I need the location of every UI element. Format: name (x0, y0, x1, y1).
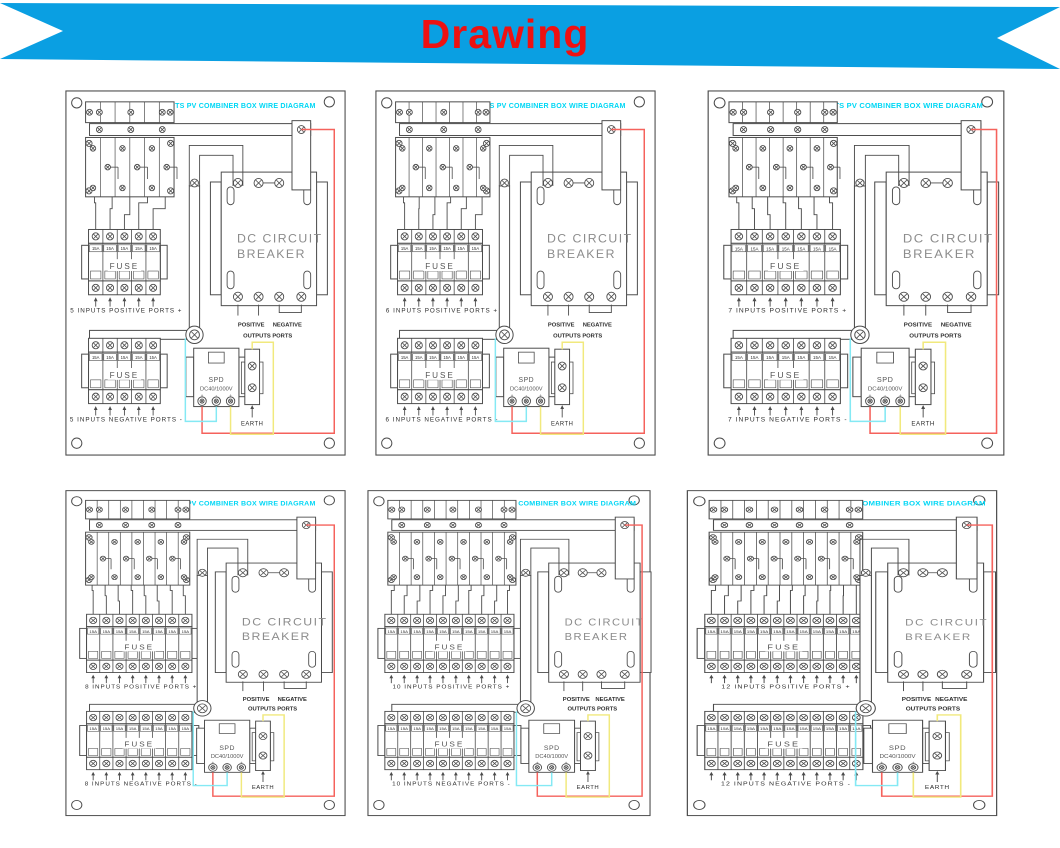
outputs-negative-label: NEGATIVE (941, 323, 972, 329)
fuse-rating-label: 15A (786, 726, 794, 730)
outputs-ports-label: OUTPUTS PORTS (567, 707, 617, 713)
fuse-rating-label: 15A (168, 726, 176, 731)
negative-ports-label: 10 INPUTS NEGATIVE PORTS - (392, 782, 511, 788)
fuse-rating-label: 15A (478, 629, 486, 634)
breaker-label: BREAKER (565, 631, 629, 642)
drawing-sheet: { "banner": { "title": "Drawing", "bg_co… (0, 0, 1060, 848)
fuse-rating-label: 15A (92, 246, 100, 251)
fuse-label: FUSE (434, 643, 464, 651)
fuse-rating-label: 15A (734, 629, 742, 633)
fuse-rating-label: 15A (149, 246, 157, 251)
fuse-rating-label: 15A (504, 629, 512, 634)
fuse-rating-label: 15A (116, 726, 124, 731)
fuse-rating-label: 15A (829, 246, 837, 251)
surge-protector: SPDDC40/1000V+-+ (864, 720, 932, 772)
fuse-rating-label: 15A (155, 726, 163, 731)
spd-label: DC40/1000V (880, 755, 916, 760)
fuse-rating-label: 15A (89, 629, 97, 634)
fuse-rating-label: 15A (782, 355, 790, 360)
combiner-diagram-10-inputs: 10 INPUTS PV COMBINER BOX WIRE DIAGRAM15… (364, 488, 654, 820)
fuse-rating-label: 15A (439, 629, 447, 634)
fuse-rating-label: 15A (766, 246, 774, 251)
outputs-negative-label: NEGATIVE (595, 697, 625, 703)
outputs-ports-label: OUTPUTS PORTS (248, 707, 298, 713)
fuse-label: FUSE (770, 370, 801, 380)
fuse-rating-label: 15A (813, 629, 821, 633)
panel-slot-1: 5 INPUTS PV COMBINER BOX WIRE DIAGRAM15A… (62, 88, 349, 465)
spd-label: SPD (219, 746, 235, 753)
breaker-label: BREAKER (237, 247, 306, 261)
surge-protector: SPDDC40/1000V+-+ (186, 348, 247, 406)
fuse-rating-label: 15A (452, 629, 460, 634)
positive-ports-label: 10 INPUTS POSITIVE PORTS + (392, 685, 510, 691)
fuse-rating-label: 15A (457, 355, 465, 360)
breaker-label: BREAKER (905, 632, 972, 643)
fuse-rating-label: 15A (129, 629, 137, 634)
spd-label: SPD (889, 746, 906, 752)
earth-label: EARTH (911, 421, 935, 428)
fuse-rating-label: 15A (401, 246, 409, 251)
fuse-label: FUSE (767, 643, 800, 651)
spd-label: DC40/1000V (510, 387, 543, 393)
fuse-rating-label: 15A (182, 726, 190, 731)
breaker-label: DC CIRCUIT (242, 616, 328, 628)
banner-title: Drawing (421, 11, 590, 57)
panel-slot-2: 6 INPUTS PV COMBINER BOX WIRE DIAGRAM15A… (372, 88, 659, 465)
positive-ports-label: 8 INPUTS POSITIVE PORTS + (85, 685, 197, 691)
fuse-rating-label: 15A (149, 355, 157, 360)
surge-protector: SPDDC40/1000V+-+ (197, 720, 258, 772)
spd-label: DC40/1000V (200, 387, 233, 393)
fuse-rating-label: 15A (766, 355, 774, 360)
fuse-rating-label: 15A (135, 246, 143, 251)
fuse-label: FUSE (425, 371, 455, 380)
fuse-rating-label: 15A (465, 629, 473, 634)
fuse-rating-label: 15A (491, 629, 499, 634)
outputs-positive-label: POSITIVE (238, 322, 265, 328)
combiner-diagram-5-inputs: 5 INPUTS PV COMBINER BOX WIRE DIAGRAM15A… (62, 88, 349, 460)
positive-ports-label: 12 INPUTS POSITIVE PORTS + (721, 684, 850, 690)
spd-label: DC40/1000V (535, 754, 568, 760)
breaker-label: DC CIRCUIT (237, 231, 323, 245)
surge-protector: SPDDC40/1000V+-+ (853, 348, 918, 406)
fuse-rating-label: 15A (751, 355, 759, 360)
spd-label: DC40/1000V (211, 754, 244, 760)
fuse-rating-label: 15A (799, 629, 807, 633)
breaker-label: BREAKER (547, 247, 616, 261)
outputs-negative-label: NEGATIVE (583, 322, 612, 328)
fuse-rating-label: 15A (829, 355, 837, 360)
fuse-rating-label: 15A (782, 246, 790, 251)
fuse-rating-label: 15A (413, 629, 421, 634)
fuse-rating-label: 15A (747, 629, 755, 633)
fuse-rating-label: 15A (735, 246, 743, 251)
junction-stud (496, 326, 513, 343)
fuse-rating-label: 15A (388, 629, 396, 634)
fuse-rating-label: 15A (465, 726, 473, 731)
fuse-rating-label: 15A (443, 355, 451, 360)
panel-slot-6: 12 INPUTS PV COMBINER BOX WIRE DIAGRAM15… (683, 488, 1001, 825)
fuse-rating-label: 15A (401, 355, 409, 360)
combiner-diagram-12-inputs: 12 INPUTS PV COMBINER BOX WIRE DIAGRAM15… (683, 488, 1001, 820)
fuse-rating-label: 15A (400, 629, 408, 634)
surge-protector: SPDDC40/1000V+-+ (496, 348, 557, 406)
outputs-positive-label: POSITIVE (563, 697, 590, 703)
fuse-rating-label: 15A (504, 726, 512, 731)
fuse-rating-label: 15A (786, 629, 794, 633)
earth-label: EARTH (577, 785, 600, 791)
fuse-rating-label: 15A (89, 726, 97, 731)
fuse-rating-label: 15A (116, 629, 124, 634)
panel-title: 5 INPUTS PV COMBINER BOX WIRE DIAGRAM (151, 102, 315, 110)
fuse-label: FUSE (110, 371, 140, 380)
fuse-rating-label: 15A (426, 629, 434, 634)
fuse-rating-label: 15A (142, 726, 150, 731)
junction-stud (194, 701, 211, 717)
fuse-rating-label: 15A (182, 629, 190, 634)
fuse-rating-label: 15A (813, 355, 821, 360)
fuse-rating-label: 15A (142, 629, 150, 634)
fuse-rating-label: 15A (813, 246, 821, 251)
fuse-rating-label: 15A (400, 726, 408, 731)
fuse-rating-label: 15A (813, 726, 821, 730)
fuse-rating-label: 15A (797, 246, 805, 251)
spd-label: SPD (544, 746, 560, 753)
spd-label: SPD (877, 376, 894, 384)
fuse-rating-label: 15A (106, 246, 114, 251)
spd-label: DC40/1000V (868, 387, 903, 393)
junction-stud (517, 701, 534, 717)
negative-ports-label: 6 INPUTS NEGATIVE PORTS - (386, 416, 499, 423)
negative-ports-label: 12 INPUTS NEGATIVE PORTS - (721, 781, 851, 787)
fuse-rating-label: 15A (826, 629, 834, 633)
negative-ports-label: 7 INPUTS NEGATIVE PORTS - (728, 417, 848, 424)
earth-label: EARTH (551, 421, 573, 427)
fuse-rating-label: 15A (797, 355, 805, 360)
fuse-rating-label: 15A (121, 355, 129, 360)
fuse-rating-label: 15A (773, 726, 781, 730)
fuse-rating-label: 15A (155, 629, 163, 634)
earth-label: EARTH (252, 785, 274, 791)
fuse-rating-label: 15A (799, 726, 807, 730)
combiner-diagram-8-inputs: 8 INPUTS PV COMBINER BOX WIRE DIAGRAM15A… (62, 488, 349, 820)
breaker-label: DC CIRCUIT (905, 618, 988, 629)
fuse-rating-label: 15A (415, 355, 423, 360)
outputs-ports-label: OUTPUTS PORTS (243, 333, 292, 339)
fuse-rating-label: 15A (429, 355, 437, 360)
fuse-rating-label: 15A (168, 629, 176, 634)
junction-stud (856, 701, 875, 717)
fuse-label: FUSE (110, 262, 140, 271)
earth-label: EARTH (241, 421, 263, 427)
fuse-rating-label: 15A (92, 355, 100, 360)
breaker-label: BREAKER (242, 630, 311, 642)
outputs-positive-label: POSITIVE (243, 697, 270, 703)
fuse-rating-label: 15A (103, 629, 111, 634)
fuse-rating-label: 15A (751, 246, 759, 251)
positive-ports-label: 7 INPUTS POSITIVE PORTS + (728, 308, 847, 315)
surge-protector: SPDDC40/1000V+-+ (521, 720, 583, 772)
combiner-diagram-7-inputs: 7 INPUTS PV COMBINER BOX WIRE DIAGRAM15A… (704, 88, 1008, 460)
fuse-rating-label: 15A (839, 629, 847, 633)
fuse-rating-label: 15A (747, 726, 755, 730)
fuse-rating-label: 15A (852, 629, 860, 633)
fuse-label: FUSE (767, 740, 800, 748)
breaker-label: BREAKER (903, 247, 976, 261)
fuse-rating-label: 15A (472, 355, 480, 360)
fuse-rating-label: 15A (103, 726, 111, 731)
fuse-rating-label: 15A (439, 726, 447, 731)
negative-ports-label: 5 INPUTS NEGATIVE PORTS - (70, 416, 183, 423)
fuse-rating-label: 15A (443, 246, 451, 251)
outputs-ports-label: OUTPUTS PORTS (909, 333, 961, 339)
junction-stud (851, 326, 869, 343)
fuse-rating-label: 15A (135, 355, 143, 360)
positive-ports-label: 6 INPUTS POSITIVE PORTS + (386, 308, 498, 315)
fuse-rating-label: 15A (388, 726, 396, 731)
fuse-rating-label: 15A (106, 355, 114, 360)
fuse-label: FUSE (124, 643, 154, 652)
positive-ports-label: 5 INPUTS POSITIVE PORTS + (70, 308, 182, 315)
fuse-rating-label: 15A (457, 246, 465, 251)
panel-slot-5: 10 INPUTS PV COMBINER BOX WIRE DIAGRAM15… (364, 488, 654, 825)
fuse-rating-label: 15A (121, 246, 129, 251)
fuse-label: FUSE (425, 262, 455, 271)
negative-ports-label: 8 INPUTS NEGATIVE PORTS - (85, 782, 198, 788)
fuse-rating-label: 15A (415, 246, 423, 251)
fuse-rating-label: 15A (426, 726, 434, 731)
fuse-rating-label: 15A (452, 726, 460, 731)
outputs-negative-label: NEGATIVE (273, 322, 302, 328)
fuse-rating-label: 15A (773, 629, 781, 633)
panel-slot-4: 8 INPUTS PV COMBINER BOX WIRE DIAGRAM15A… (62, 488, 349, 825)
outputs-positive-label: POSITIVE (902, 697, 932, 702)
fuse-rating-label: 15A (129, 726, 137, 731)
earth-label: EARTH (925, 786, 950, 791)
outputs-positive-label: POSITIVE (548, 322, 575, 328)
spd-label: SPD (209, 377, 225, 384)
spd-label: SPD (519, 377, 535, 384)
outputs-ports-label: OUTPUTS PORTS (553, 333, 602, 339)
banner-ribbon: Drawing (0, 0, 1060, 72)
fuse-rating-label: 15A (429, 246, 437, 251)
fuse-rating-label: 15A (760, 629, 768, 633)
fuse-rating-label: 15A (707, 629, 715, 633)
fuse-rating-label: 15A (734, 726, 742, 730)
outputs-negative-label: NEGATIVE (278, 697, 307, 703)
fuse-label: FUSE (770, 261, 801, 271)
outputs-ports-label: OUTPUTS PORTS (906, 707, 961, 712)
fuse-rating-label: 15A (826, 726, 834, 730)
panel-slot-3: 7 INPUTS PV COMBINER BOX WIRE DIAGRAM15A… (704, 88, 1008, 465)
breaker-label: DC CIRCUIT (547, 231, 633, 245)
fuse-rating-label: 15A (478, 726, 486, 731)
fuse-rating-label: 15A (735, 355, 743, 360)
fuse-label: FUSE (434, 740, 464, 748)
fuse-rating-label: 15A (760, 726, 768, 730)
breaker-label: DC CIRCUIT (565, 617, 644, 628)
fuse-rating-label: 15A (720, 726, 728, 730)
fuse-label: FUSE (124, 740, 154, 749)
combiner-diagram-6-inputs: 6 INPUTS PV COMBINER BOX WIRE DIAGRAM15A… (372, 88, 659, 460)
fuse-rating-label: 15A (472, 246, 480, 251)
fuse-rating-label: 15A (707, 726, 715, 730)
junction-stud (186, 326, 203, 343)
outputs-negative-label: NEGATIVE (935, 697, 967, 702)
fuse-rating-label: 15A (491, 726, 499, 731)
outputs-positive-label: POSITIVE (904, 323, 932, 329)
fuse-rating-label: 15A (413, 726, 421, 731)
fuse-rating-label: 15A (839, 726, 847, 730)
fuse-rating-label: 15A (720, 629, 728, 633)
breaker-label: DC CIRCUIT (903, 232, 994, 246)
